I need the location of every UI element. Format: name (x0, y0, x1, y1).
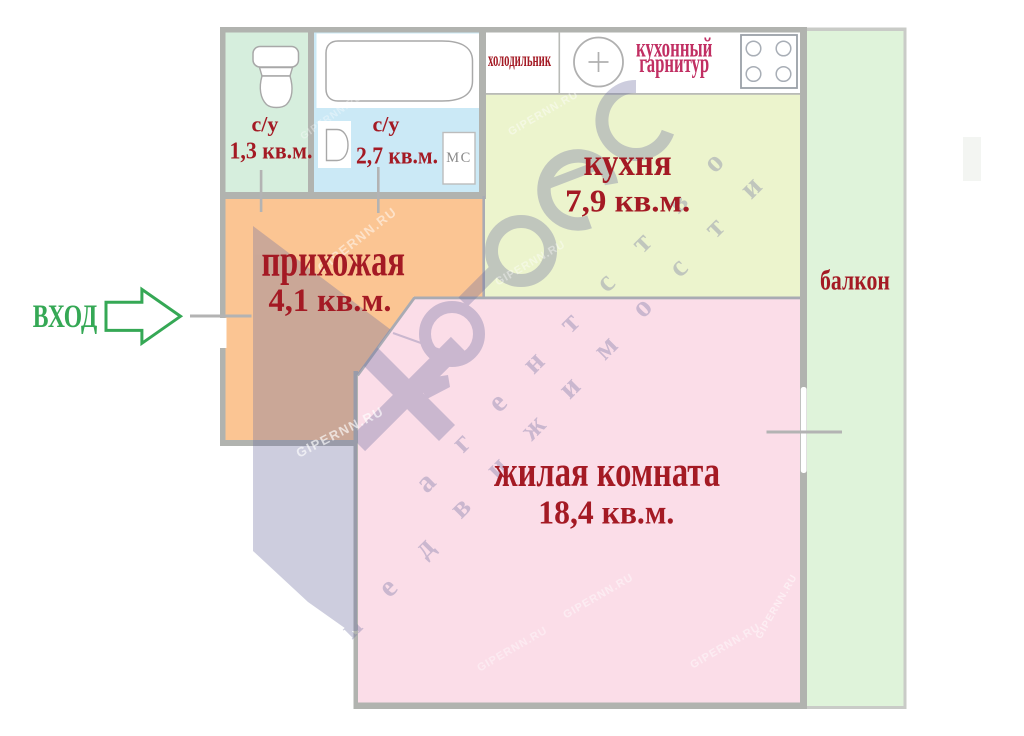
svg-text:холодильник: холодильник (488, 49, 551, 71)
svg-text:жилая комната: жилая комната (494, 449, 720, 496)
svg-text:прихожая: прихожая (261, 236, 405, 286)
svg-text:с/у: с/у (252, 112, 279, 137)
svg-text:18,4 кв.м.: 18,4 кв.м. (538, 495, 674, 532)
svg-text:с/у: с/у (373, 112, 400, 137)
svg-text:4,1 кв.м.: 4,1 кв.м. (269, 283, 392, 319)
svg-text:2,7 кв.м.: 2,7 кв.м. (356, 144, 438, 170)
svg-text:ВХОД: ВХОД (33, 299, 98, 335)
svg-text:кухня: кухня (584, 142, 672, 184)
svg-text:балкон: балкон (820, 265, 890, 297)
svg-text:7,9 кв.м.: 7,9 кв.м. (565, 183, 690, 219)
svg-text:МС: МС (446, 150, 472, 166)
svg-text:гарнитур: гарнитур (639, 48, 709, 78)
svg-text:1,3 кв.м.: 1,3 кв.м. (230, 138, 313, 165)
